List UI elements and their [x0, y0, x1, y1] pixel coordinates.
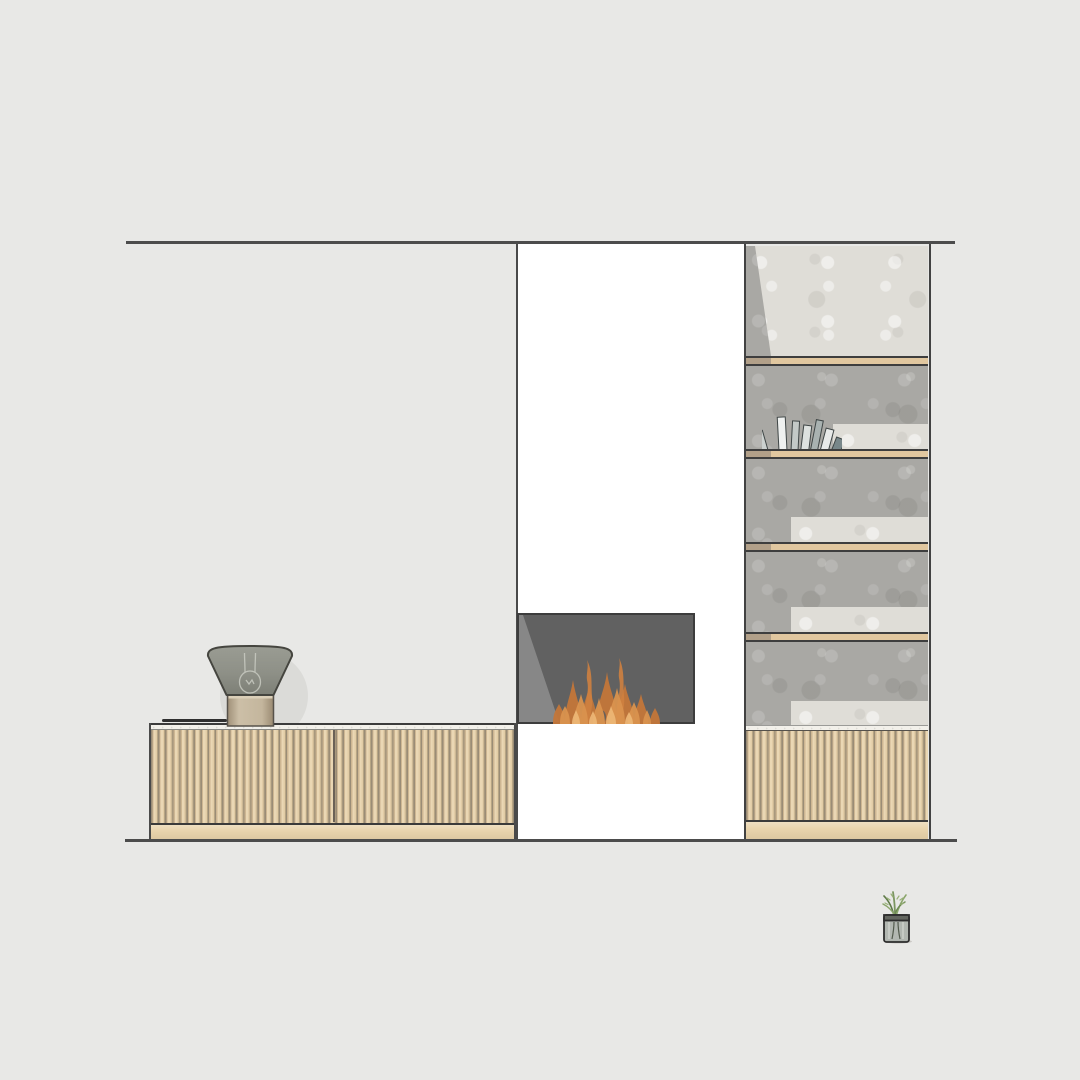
shelving-unit: [744, 244, 931, 841]
door-seam: [333, 730, 335, 822]
media-cabinet: [149, 723, 516, 841]
floor-reference-line: [125, 839, 957, 842]
shelf-compartment-3: [746, 459, 928, 542]
plant-leaves: [883, 892, 906, 916]
base-cabinet-door: [746, 730, 928, 823]
compartment-2-light-band: [833, 424, 928, 449]
shelf-compartment-4: [746, 552, 928, 632]
compartment-4-light-band: [791, 607, 928, 632]
wood-shelf-2: [746, 449, 928, 459]
wood-shelf-4: [746, 632, 928, 642]
chimney-panel: [516, 244, 744, 841]
plant-in-vase: [872, 888, 917, 944]
shelf-compartment-2: [746, 366, 928, 449]
lamp-base: [228, 695, 274, 726]
media-cabinet-doors: [151, 730, 514, 825]
shelf-compartment-1: [746, 246, 928, 356]
ceiling-reference-line: [126, 241, 955, 244]
lamp-shade: [208, 646, 292, 695]
compartment-1-shadow-wedge: [746, 246, 771, 356]
shelf-compartment-5: [746, 642, 928, 725]
table-lamp: [195, 638, 305, 728]
plant-vase: [884, 915, 909, 942]
wood-shelf-1: [746, 356, 928, 366]
compartment-5-light-band: [791, 701, 928, 725]
fire-flames-icon: [543, 650, 678, 724]
compartment-3-light-band: [791, 517, 928, 542]
elevation-canvas: [0, 0, 1080, 1080]
wood-shelf-3: [746, 542, 928, 552]
